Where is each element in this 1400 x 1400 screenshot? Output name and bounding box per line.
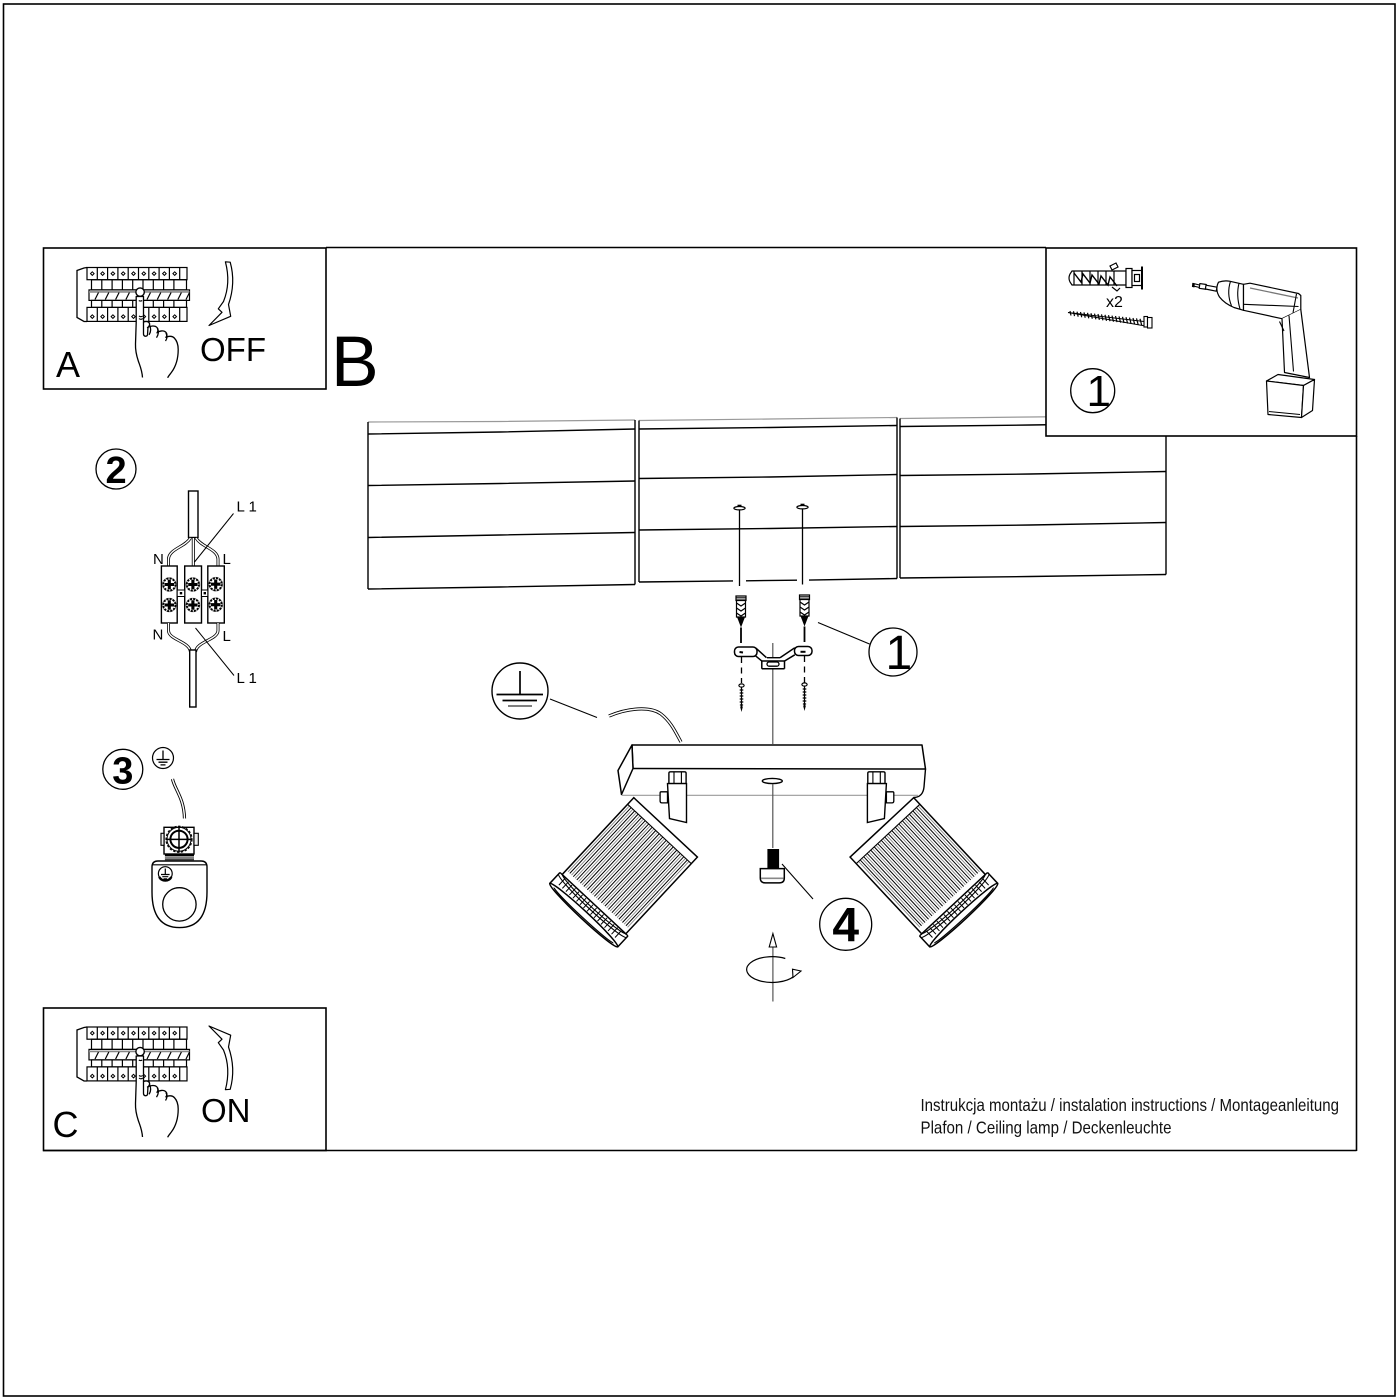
svg-text:3: 3	[112, 751, 133, 793]
svg-text:N: N	[153, 627, 164, 644]
svg-text:4: 4	[832, 900, 859, 953]
svg-text:OFF: OFF	[200, 331, 266, 368]
svg-text:x2: x2	[1106, 294, 1123, 311]
svg-text:L 1: L 1	[237, 670, 257, 687]
svg-text:ON: ON	[201, 1092, 251, 1129]
svg-text:B: B	[331, 322, 379, 402]
svg-text:1: 1	[886, 627, 913, 680]
svg-text:L 1: L 1	[237, 499, 257, 516]
svg-text:1: 1	[1087, 367, 1111, 416]
svg-text:L: L	[223, 628, 231, 645]
svg-text:L: L	[223, 551, 231, 568]
svg-text:Instrukcja montażu / instalati: Instrukcja montażu / instalation instruc…	[921, 1095, 1340, 1115]
svg-text:C: C	[53, 1104, 79, 1145]
svg-text:N: N	[153, 551, 164, 568]
svg-text:2: 2	[106, 450, 127, 492]
svg-text:Plafon / Ceiling lamp / Decken: Plafon / Ceiling lamp / Deckenleuchte	[921, 1118, 1172, 1138]
svg-text:A: A	[56, 344, 80, 385]
